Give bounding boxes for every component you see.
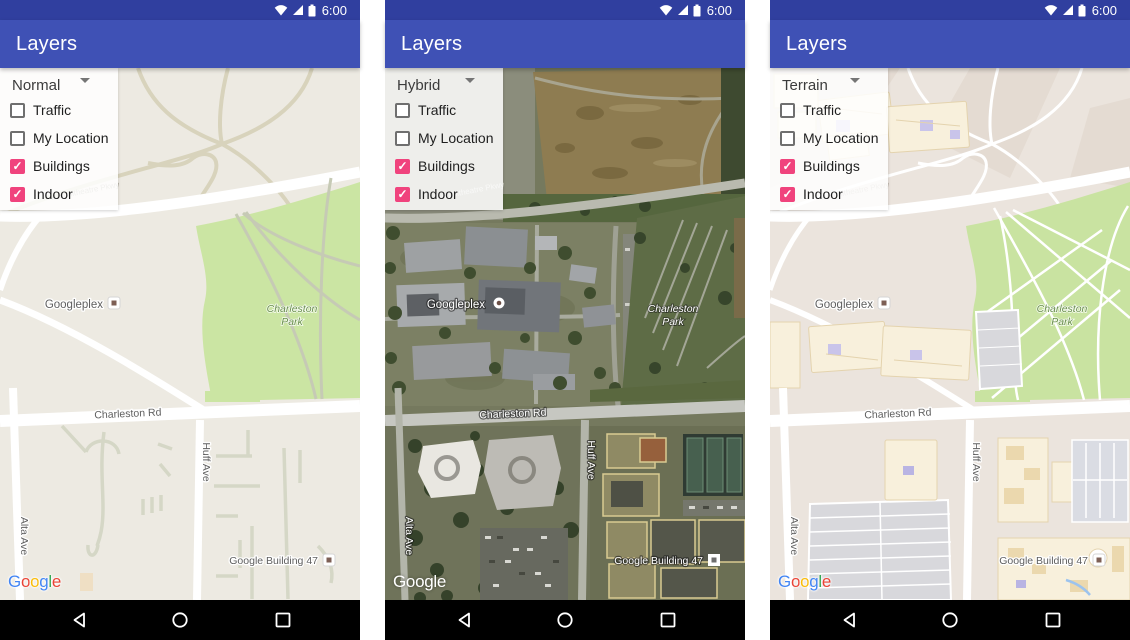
map-normal[interactable]: Amphitheatre Pkwy Googleplex Charleston …: [0, 68, 360, 600]
checkbox-my-location[interactable]: [780, 131, 795, 146]
app-bar: Layers: [385, 20, 745, 68]
back-button[interactable]: [457, 612, 473, 628]
signal-icon: [292, 4, 304, 16]
layer-option-indoor[interactable]: ✓ Indoor: [10, 186, 73, 202]
building-47-marker[interactable]: [708, 554, 720, 566]
checkbox-label: Buildings: [803, 158, 860, 174]
screen-normal: 6:00 Layers: [0, 0, 360, 640]
back-button[interactable]: [72, 612, 88, 628]
checkbox-buildings[interactable]: ✓: [780, 159, 795, 174]
map-type-spinner[interactable]: Hybrid: [397, 73, 440, 97]
spinner-value: Hybrid: [397, 77, 440, 94]
signal-icon: [1062, 4, 1074, 16]
charleston-park-label-2: Park: [1051, 316, 1073, 328]
checkbox-label: Traffic: [33, 102, 71, 118]
checkbox-label: Indoor: [803, 186, 843, 202]
building-47-label: Google Building 47: [229, 555, 318, 567]
navigation-bar: [770, 600, 1130, 640]
checkbox-buildings[interactable]: ✓: [395, 159, 410, 174]
status-bar: 6:00: [770, 0, 1130, 20]
huff-ave-label: Huff Ave: [970, 442, 982, 481]
checkbox-buildings[interactable]: ✓: [10, 159, 25, 174]
checkbox-indoor[interactable]: ✓: [395, 187, 410, 202]
layer-option-traffic[interactable]: Traffic: [395, 102, 456, 118]
signal-icon: [677, 4, 689, 16]
googleplex-marker[interactable]: [108, 297, 120, 309]
alta-ave-label: Alta Ave: [788, 517, 800, 555]
google-logo: Google: [8, 572, 61, 592]
layer-option-buildings[interactable]: ✓ Buildings: [10, 158, 90, 174]
map-hybrid[interactable]: Amphitheatre Pkwy Googleplex Charleston …: [385, 68, 745, 600]
charleston-park-label-1: Charleston: [1037, 303, 1088, 315]
layers-panel: Terrain Traffic My Location ✓ Buildings …: [770, 68, 888, 210]
checkbox-my-location[interactable]: [10, 131, 25, 146]
app-bar: Layers: [0, 20, 360, 68]
building-47-label: Google Building 47: [614, 555, 703, 567]
charleston-park-label-1: Charleston: [267, 303, 318, 315]
recents-button[interactable]: [1045, 612, 1061, 628]
screen-terrain: 6:00 Layers: [770, 0, 1130, 640]
recents-button[interactable]: [660, 612, 676, 628]
page-title: Layers: [401, 33, 462, 56]
checkbox-label: Buildings: [418, 158, 475, 174]
layer-option-my-location[interactable]: My Location: [395, 130, 493, 146]
triple-screenshot: 6:00 Layers: [0, 0, 1130, 640]
home-button[interactable]: [942, 612, 958, 628]
layer-option-buildings[interactable]: ✓ Buildings: [780, 158, 860, 174]
googleplex-label: Googleplex: [815, 299, 873, 311]
status-bar: 6:00: [0, 0, 360, 20]
checkbox-traffic[interactable]: [780, 103, 795, 118]
googleplex-marker[interactable]: [878, 297, 890, 309]
page-title: Layers: [16, 33, 77, 56]
chevron-down-icon: [465, 78, 475, 83]
checkbox-traffic[interactable]: [395, 103, 410, 118]
huff-ave-label: Huff Ave: [200, 442, 212, 481]
battery-icon: [1078, 4, 1086, 17]
layer-option-my-location[interactable]: My Location: [10, 130, 108, 146]
checkbox-label: Indoor: [418, 186, 458, 202]
wifi-icon: [1044, 4, 1058, 16]
map-type-spinner[interactable]: Normal: [12, 73, 60, 97]
home-button[interactable]: [172, 612, 188, 628]
status-time: 6:00: [322, 3, 347, 18]
building-47-marker[interactable]: [1093, 554, 1105, 566]
navigation-bar: [0, 600, 360, 640]
battery-icon: [693, 4, 701, 17]
checkbox-indoor[interactable]: ✓: [10, 187, 25, 202]
checkbox-label: My Location: [418, 130, 493, 146]
huff-ave-label: Huff Ave: [585, 440, 597, 479]
charleston-park-label-1: Charleston: [648, 303, 699, 315]
chevron-down-icon: [850, 78, 860, 83]
wifi-icon: [274, 4, 288, 16]
charleston-park-label-2: Park: [662, 316, 684, 328]
charleston-park-label-2: Park: [281, 316, 303, 328]
map-terrain[interactable]: Amphitheatre Pkwy Googleplex Charleston …: [770, 68, 1130, 600]
checkbox-label: My Location: [33, 130, 108, 146]
alta-ave-label: Alta Ave: [403, 517, 415, 555]
alta-ave-label: Alta Ave: [18, 517, 30, 555]
checkbox-traffic[interactable]: [10, 103, 25, 118]
layer-option-buildings[interactable]: ✓ Buildings: [395, 158, 475, 174]
status-time: 6:00: [1092, 3, 1117, 18]
battery-icon: [308, 4, 316, 17]
layer-option-traffic[interactable]: Traffic: [10, 102, 71, 118]
layer-option-traffic[interactable]: Traffic: [780, 102, 841, 118]
checkbox-label: Buildings: [33, 158, 90, 174]
googleplex-marker[interactable]: [494, 298, 505, 309]
home-button[interactable]: [557, 612, 573, 628]
checkbox-label: My Location: [803, 130, 878, 146]
app-bar: Layers: [770, 20, 1130, 68]
spinner-value: Terrain: [782, 77, 828, 94]
building-47-label: Google Building 47: [999, 555, 1088, 567]
checkbox-my-location[interactable]: [395, 131, 410, 146]
google-logo: Google: [778, 572, 831, 592]
recents-button[interactable]: [275, 612, 291, 628]
layers-panel: Normal Traffic My Location ✓ Buildings ✓: [0, 68, 118, 210]
wifi-icon: [659, 4, 673, 16]
checkbox-label: Traffic: [803, 102, 841, 118]
googleplex-label: Googleplex: [427, 299, 485, 311]
checkbox-label: Traffic: [418, 102, 456, 118]
status-bar: 6:00: [385, 0, 745, 20]
layers-panel: Hybrid Traffic My Location ✓ Buildings ✓: [385, 68, 503, 210]
map-type-spinner[interactable]: Terrain: [782, 73, 828, 97]
page-title: Layers: [786, 33, 847, 56]
layer-option-indoor[interactable]: ✓ Indoor: [780, 186, 843, 202]
checkbox-indoor[interactable]: ✓: [780, 187, 795, 202]
building-47-marker[interactable]: [323, 554, 335, 566]
google-logo: Google: [393, 572, 446, 592]
chevron-down-icon: [80, 78, 90, 83]
layer-option-indoor[interactable]: ✓ Indoor: [395, 186, 458, 202]
layer-option-my-location[interactable]: My Location: [780, 130, 878, 146]
checkbox-label: Indoor: [33, 186, 73, 202]
navigation-bar: [385, 600, 745, 640]
googleplex-label: Googleplex: [45, 299, 103, 311]
spinner-value: Normal: [12, 77, 60, 94]
status-time: 6:00: [707, 3, 732, 18]
screen-hybrid: 6:00 Layers: [385, 0, 745, 640]
back-button[interactable]: [842, 612, 858, 628]
